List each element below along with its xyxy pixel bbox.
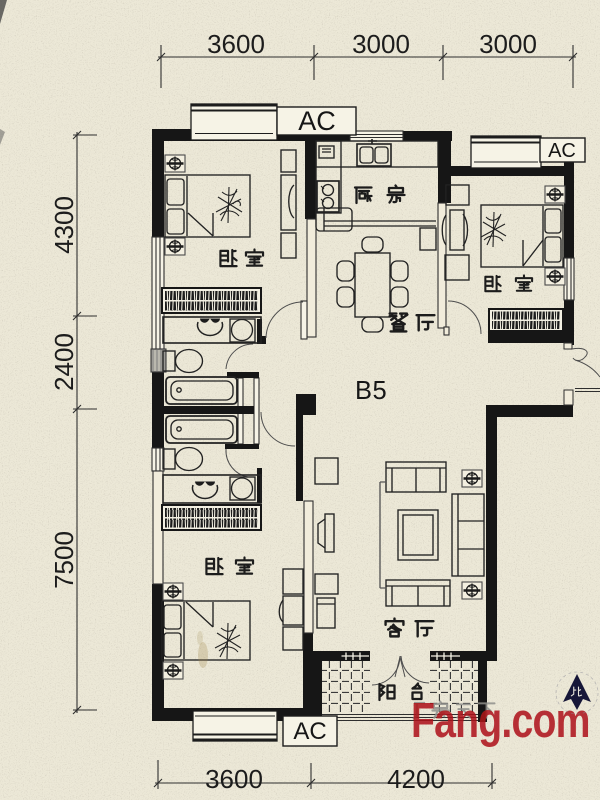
svg-text:3000: 3000 [479, 29, 537, 59]
svg-text:3000: 3000 [352, 29, 410, 59]
svg-text:4200: 4200 [387, 764, 445, 794]
svg-text:3600: 3600 [207, 29, 265, 59]
svg-text:B5: B5 [355, 377, 387, 405]
svg-text:7500: 7500 [49, 531, 79, 589]
svg-text:AC: AC [298, 106, 336, 136]
svg-text:AC: AC [293, 718, 326, 745]
svg-text:Fang.com: Fang.com [411, 694, 590, 748]
svg-text:AC: AC [548, 140, 576, 162]
svg-text:3600: 3600 [205, 764, 263, 794]
svg-text:2400: 2400 [49, 333, 79, 391]
svg-text:4300: 4300 [49, 196, 79, 254]
